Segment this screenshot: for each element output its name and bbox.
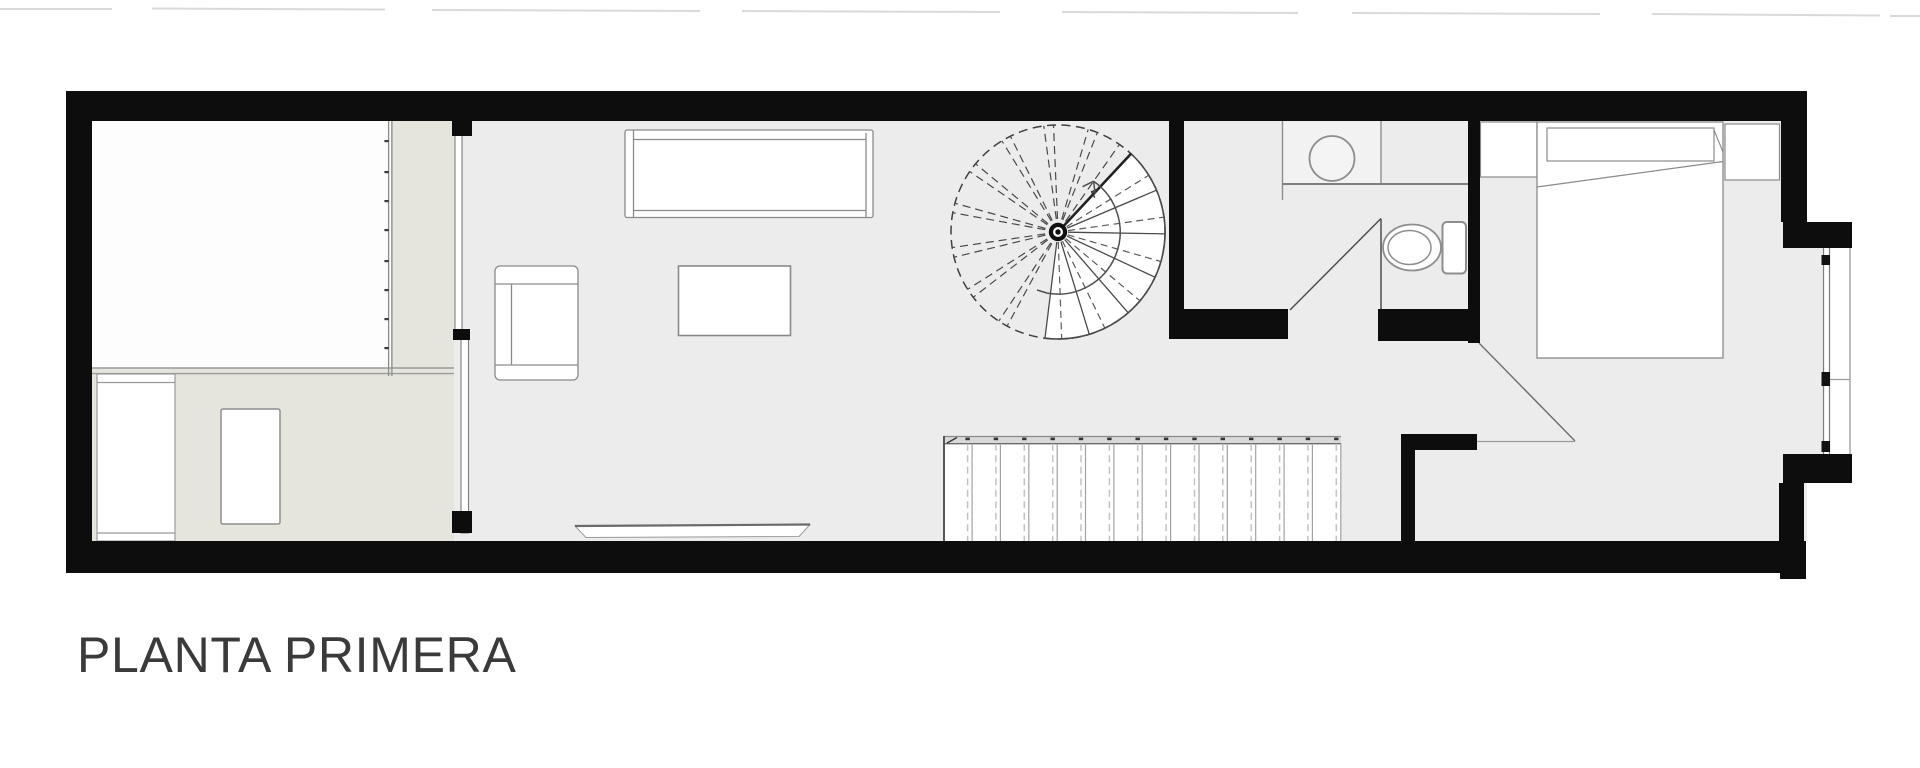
svg-text:PLANTA PRIMERA: PLANTA PRIMERA [77,627,517,683]
